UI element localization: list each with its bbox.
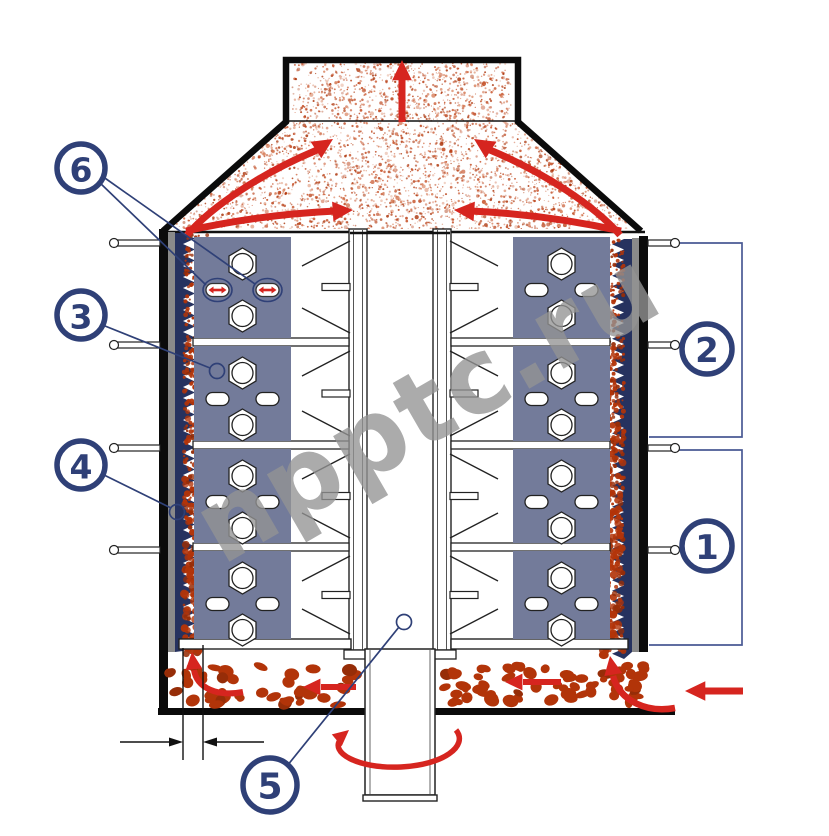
dimension-arrowhead-right-icon [169, 738, 183, 747]
callout-4: 4 [57, 441, 105, 489]
callout-2: 2 [682, 324, 732, 374]
sweep-up-left-arrow [186, 652, 244, 693]
callout-5: 5 [243, 758, 297, 812]
callout-1-label: 1 [695, 528, 719, 568]
dimension-arrowhead-left-icon [203, 738, 217, 747]
callout-6: 6 [57, 144, 105, 192]
callout-5-label: 5 [257, 767, 282, 808]
callout-3: 3 [57, 291, 105, 339]
material-inlet-arrow [685, 681, 743, 701]
mill-cross-section-diagram: npptc.ru 6 3 4 5 [0, 0, 829, 836]
callout-6-label: 6 [70, 151, 93, 190]
diagram-canvas: npptc.ru 6 3 4 5 [0, 0, 829, 836]
callout-3-label: 3 [70, 298, 93, 337]
callout-1: 1 [682, 521, 732, 571]
callout-4-label: 4 [70, 448, 93, 487]
callout-2-label: 2 [695, 331, 719, 371]
